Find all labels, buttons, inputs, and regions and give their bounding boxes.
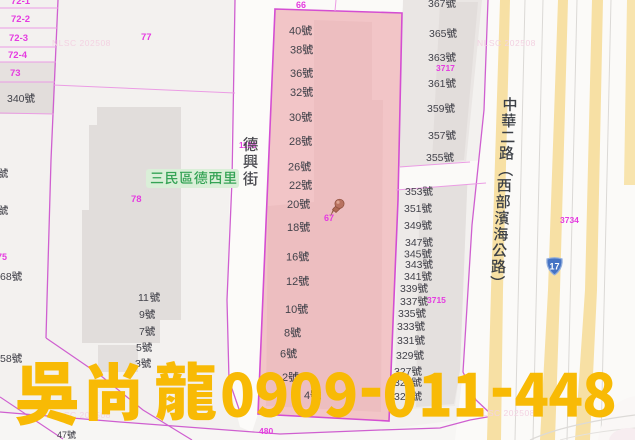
svg-text:17: 17 [549,262,559,272]
svg-text:7: 7 [139,326,145,338]
svg-text:NLSC 202508: NLSC 202508 [476,408,535,418]
svg-text:480: 480 [259,426,273,436]
svg-text:339: 339 [400,283,418,295]
svg-text:12: 12 [286,276,298,288]
svg-text:36: 36 [290,68,302,80]
svg-text:32: 32 [290,87,302,99]
svg-text:78: 78 [131,194,142,205]
svg-text:75: 75 [0,252,7,262]
svg-text:73: 73 [10,68,21,79]
svg-text:3734: 3734 [560,215,579,225]
svg-text:335: 335 [398,308,416,320]
svg-text:341: 341 [404,271,422,283]
svg-text:67: 67 [324,213,334,223]
svg-text:72-1: 72-1 [11,0,31,7]
svg-text:22: 22 [289,180,301,192]
svg-text:355: 355 [426,152,444,164]
svg-text:337: 337 [400,296,418,308]
svg-text:367: 367 [428,0,446,10]
svg-text:347: 347 [405,237,423,249]
svg-text:72-2: 72-2 [11,14,30,25]
svg-text:359: 359 [427,103,445,115]
svg-text:361: 361 [428,78,446,90]
svg-text:30: 30 [289,112,301,124]
svg-text:77: 77 [141,32,152,43]
svg-text:38: 38 [290,45,302,57]
svg-text:72-4: 72-4 [8,50,28,61]
svg-text:6: 6 [280,349,286,361]
svg-text:351: 351 [404,203,422,215]
svg-text:9: 9 [139,309,145,321]
svg-text:3717: 3717 [436,63,455,73]
svg-text:4: 4 [304,390,310,402]
svg-text:26: 26 [288,162,300,174]
svg-text:72-3: 72-3 [9,33,28,44]
svg-text:333: 333 [397,321,415,333]
svg-text:28: 28 [289,136,301,148]
svg-text:66: 66 [296,0,306,10]
svg-text:365: 365 [429,28,447,40]
svg-text:58: 58 [0,353,12,365]
svg-text:8: 8 [284,328,290,340]
svg-text:10: 10 [285,304,297,316]
svg-text:353: 353 [405,186,423,198]
svg-text:11: 11 [138,292,149,304]
svg-text:5: 5 [136,342,142,354]
svg-text:20: 20 [287,199,299,211]
svg-text:340: 340 [7,93,25,105]
svg-text:343: 343 [405,259,423,271]
svg-text:331: 331 [397,335,415,347]
svg-text:329: 329 [396,350,414,362]
svg-text:349: 349 [404,220,422,232]
svg-text:47: 47 [57,430,67,440]
svg-text:18: 18 [287,222,299,234]
svg-text:16: 16 [286,252,298,264]
svg-text:3715: 3715 [427,295,446,305]
svg-text:357: 357 [428,130,446,142]
svg-text:68: 68 [0,271,12,283]
svg-text:NLSC 202508: NLSC 202508 [52,38,111,48]
svg-text:NLSC 202508: NLSC 202508 [477,38,536,48]
svg-text:40: 40 [289,26,301,38]
